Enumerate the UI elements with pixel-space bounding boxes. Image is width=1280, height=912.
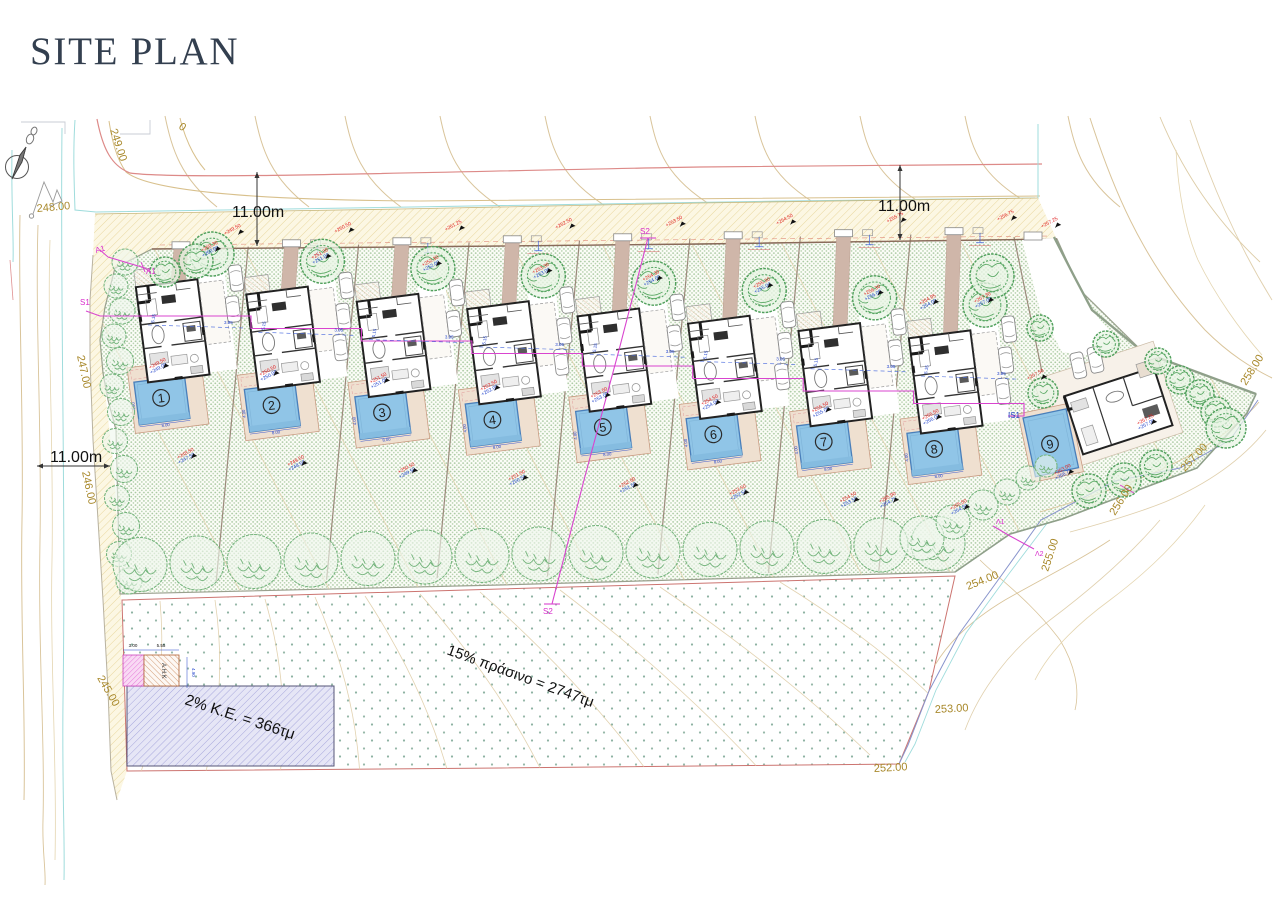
svg-text:3.95: 3.95 <box>555 342 564 347</box>
svg-text:253.00: 253.00 <box>935 702 969 716</box>
svg-text:Λ1: Λ1 <box>996 519 1005 526</box>
svg-text:3.95: 3.95 <box>445 335 454 340</box>
svg-text:3.95: 3.95 <box>666 349 675 354</box>
svg-text:3.95: 3.95 <box>224 320 233 325</box>
svg-text:4.90: 4.90 <box>191 668 196 677</box>
svg-text:11.00m: 11.00m <box>878 198 930 215</box>
svg-text:3.95: 3.95 <box>334 327 343 332</box>
svg-text:3.95: 3.95 <box>997 371 1006 376</box>
svg-text:SITE PLAN: SITE PLAN <box>30 30 239 73</box>
svg-text:Λ2: Λ2 <box>1035 551 1044 558</box>
svg-text:S2: S2 <box>543 607 553 616</box>
svg-text:11.00m: 11.00m <box>232 204 284 221</box>
svg-text:Λ1: Λ1 <box>146 267 156 276</box>
svg-text:IS1: IS1 <box>1008 411 1021 420</box>
svg-text:3.95: 3.95 <box>776 357 785 362</box>
svg-text:S2: S2 <box>640 227 650 236</box>
svg-text:3.95: 3.95 <box>887 364 896 369</box>
svg-text:252.00: 252.00 <box>874 761 908 775</box>
svg-text:S1: S1 <box>80 298 90 307</box>
svg-text:A.H.K: A.H.K <box>160 663 166 679</box>
svg-text:3.00: 3.00 <box>129 643 138 648</box>
svg-text:11.00m: 11.00m <box>50 449 102 466</box>
svg-text:5.55: 5.55 <box>157 643 166 648</box>
